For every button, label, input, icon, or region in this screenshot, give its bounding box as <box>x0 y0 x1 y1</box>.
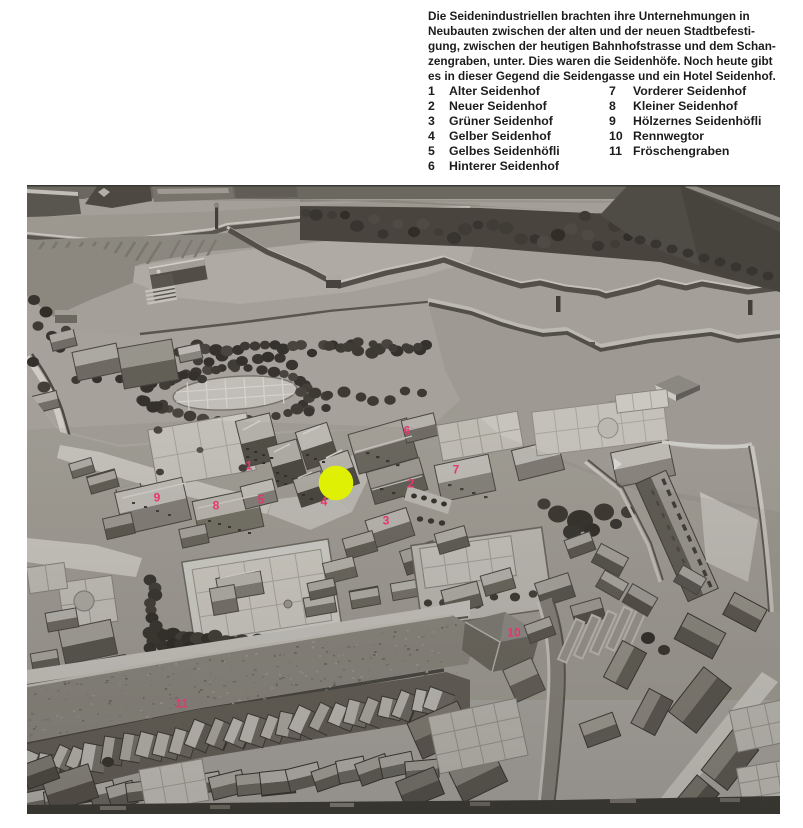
svg-text:8: 8 <box>213 499 220 513</box>
svg-text:2: 2 <box>408 477 415 491</box>
svg-text:6: 6 <box>404 424 411 438</box>
svg-text:5: 5 <box>258 493 265 507</box>
svg-text:4: 4 <box>321 495 328 509</box>
svg-text:3: 3 <box>383 514 390 528</box>
svg-text:1: 1 <box>246 459 253 473</box>
svg-text:9: 9 <box>154 491 161 505</box>
svg-text:11: 11 <box>176 697 189 711</box>
svg-text:7: 7 <box>453 463 460 477</box>
svg-text:10: 10 <box>507 626 521 640</box>
